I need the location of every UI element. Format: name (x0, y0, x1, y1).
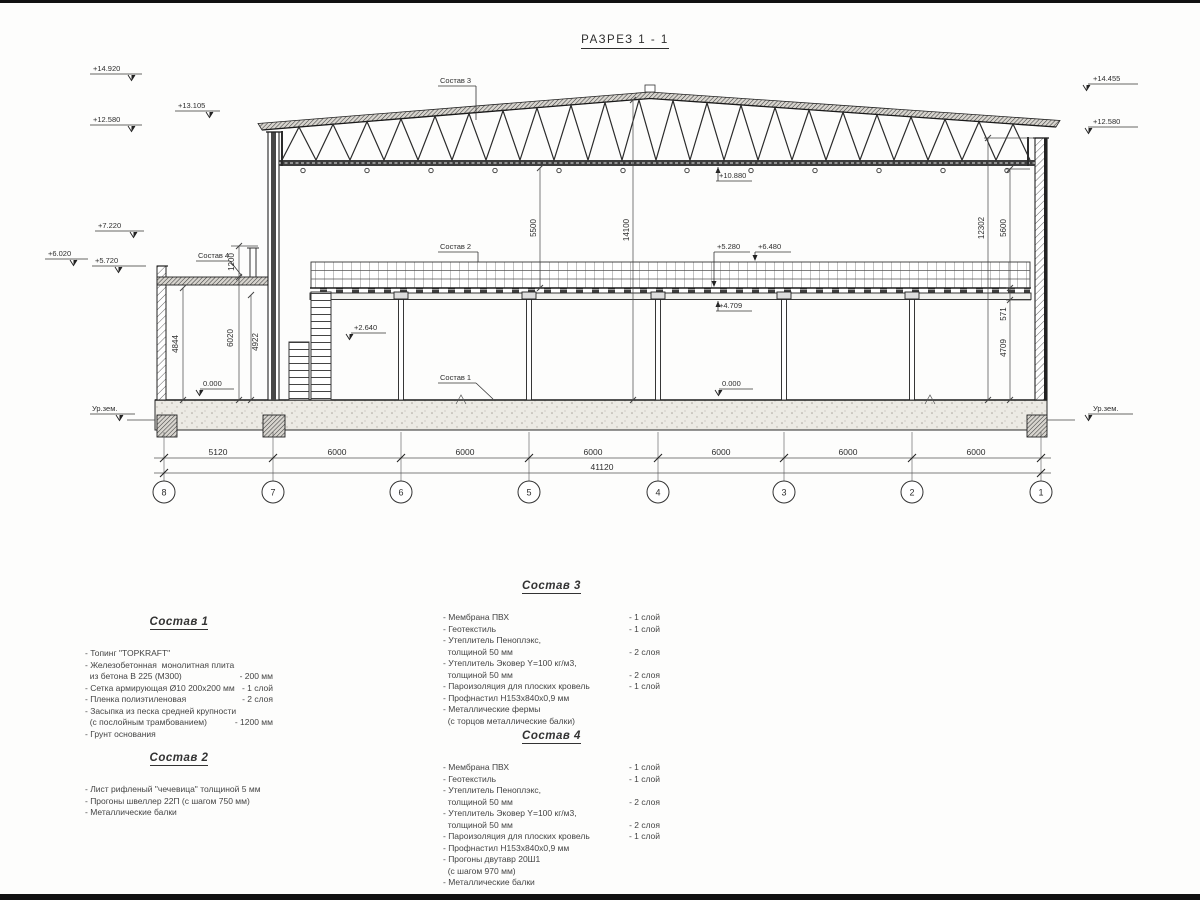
notes-sostav-3: Состав 3 - Мембрана ПВХ- 1 слой - Геотек… (443, 576, 660, 727)
note-line: - Профнастил Н153х840х0,9 мм (443, 843, 660, 855)
ground-level-label: Ур.зем. (92, 404, 117, 413)
note-line: (с послойным трамбованием)- 1200 мм (85, 717, 273, 729)
dimension-label: 5120 (209, 447, 228, 457)
note-line: - Сетка армирующая Ø10 200х200 мм- 1 сло… (85, 683, 273, 695)
callout-label: Состав 3 (440, 76, 471, 85)
dimension-label: 6000 (456, 447, 475, 457)
note-line: - Засыпка из песка средней крупности (85, 706, 273, 718)
note-line: - Утеплитель Пеноплэкс, (443, 635, 660, 647)
note-text: (с послойным трамбованием) (85, 717, 207, 729)
elevation-label: +14.455 (1093, 74, 1120, 83)
note-value: - 1 слой (629, 612, 660, 624)
note-text: - Прогоны швеллер 22П (с шагом 750 мм) (85, 796, 250, 808)
elevation-label: +5.280 (717, 242, 740, 251)
note-text: - Геотекстиль (443, 624, 496, 636)
interior-columns (394, 292, 919, 400)
note-heading: Состав 2 (85, 748, 273, 766)
note-text: - Утеплитель Эковер Y=100 кг/м3, (443, 658, 577, 670)
axis-number: 6 (398, 488, 403, 498)
note-value: - 1200 мм (235, 717, 273, 729)
note-line: толщиной 50 мм- 2 слоя (443, 820, 660, 832)
axis-number: 3 (781, 488, 786, 498)
stair (289, 292, 331, 400)
note-line: - Прогоны швеллер 22П (с шагом 750 мм) (85, 796, 273, 808)
annex (157, 248, 268, 400)
elevation-label: +4.709 (719, 301, 742, 310)
sheet-border-bottom (0, 894, 1200, 900)
dimension-label: 6000 (839, 447, 858, 457)
elevation-label: +13.105 (178, 101, 205, 110)
elevation-label: +14.920 (93, 64, 120, 73)
note-line: толщиной 50 мм- 2 слоя (443, 797, 660, 809)
dimension-label: 4844 (171, 335, 180, 353)
note-line: - Металлические балки (85, 807, 273, 819)
note-text: - Сетка армирующая Ø10 200х200 мм (85, 683, 235, 695)
notes-sostav-2: Состав 2 - Лист рифленый "чечевица" толщ… (85, 748, 273, 819)
note-text: - Пароизоляция для плоских кровель (443, 831, 590, 843)
note-heading: Состав 1 (85, 612, 273, 630)
dimension-label: 12302 (977, 216, 986, 239)
elevation-label: +2.640 (354, 323, 377, 332)
note-text: - Профнастил Н153х840х0,9 мм (443, 693, 569, 705)
elevation-marks-right: +14.455 +12.580 Ур.зем. (1083, 74, 1138, 421)
note-text: (с шагом 970 мм) (443, 866, 516, 878)
dimension-label: 6000 (712, 447, 731, 457)
dimension-label: 1200 (227, 253, 236, 271)
note-text: - Прогоны двутавр 20Ш1 (443, 854, 540, 866)
note-text: - Мембрана ПВХ (443, 762, 509, 774)
note-value: - 2 слоя (629, 670, 660, 682)
note-value: - 1 слой (629, 624, 660, 636)
dimension-label: 5600 (999, 219, 1008, 237)
note-line: - Геотекстиль- 1 слой (443, 624, 660, 636)
dimension-label: 4922 (251, 333, 260, 351)
axis-number: 2 (909, 488, 914, 498)
note-value: - 200 мм (240, 671, 273, 683)
note-text: - Утеплитель Пеноплэкс, (443, 635, 541, 647)
note-line: - Металлические фермы (443, 704, 660, 716)
note-value: - 1 слой (629, 762, 660, 774)
note-line: - Пароизоляция для плоских кровель- 1 сл… (443, 831, 660, 843)
elevation-marks-left: +14.920 +13.105 +12.580 +7.220 +6.020 +5… (45, 64, 220, 421)
chord-hooks (301, 168, 1009, 172)
axis-number: 4 (655, 488, 660, 498)
note-value: - 2 слоя (242, 694, 273, 706)
dimension-label: 4709 (999, 339, 1008, 357)
note-text: - Геотекстиль (443, 774, 496, 786)
elevation-label: +5.720 (95, 256, 118, 265)
note-value: - 2 слоя (629, 797, 660, 809)
truss-web (282, 100, 1030, 160)
callout-label: Состав 2 (440, 242, 471, 251)
dimension-label: 6000 (967, 447, 986, 457)
note-text: - Металлические балки (85, 807, 177, 819)
note-text: - Металлические балки (443, 877, 535, 889)
note-text: - Металлические фермы (443, 704, 540, 716)
elevation-label: +12.580 (93, 115, 120, 124)
note-line: - Топинг "TOPKRAFT" (85, 648, 273, 660)
note-line: - Железобетонная монолитная плита (85, 660, 273, 672)
note-text: - Профнастил Н153х840х0,9 мм (443, 843, 569, 855)
note-text: - Грунт основания (85, 729, 156, 741)
elevation-label: +7.220 (98, 221, 121, 230)
note-line: - Утеплитель Пеноплэкс, (443, 785, 660, 797)
note-line: - Пленка полиэтиленовая- 2 слоя (85, 694, 273, 706)
note-value: - 1 слой (629, 831, 660, 843)
axis-number: 7 (270, 488, 275, 498)
drawing-sheet: { "title": "РАЗРЕЗ 1 - 1", "drawing": { … (0, 0, 1200, 900)
note-text: - Мембрана ПВХ (443, 612, 509, 624)
note-line: - Утеплитель Эковер Y=100 кг/м3, (443, 808, 660, 820)
callout-label: Состав 1 (440, 373, 471, 382)
notes-sostav-1: Состав 1 - Топинг "TOPKRAFT" - Железобет… (85, 612, 273, 740)
dimension-label: 6000 (328, 447, 347, 457)
dimension-label: 5500 (529, 219, 538, 237)
axis-bubbles: 8 7 6 5 4 3 2 1 (153, 481, 1052, 503)
note-line: - Прогоны двутавр 20Ш1 (443, 854, 660, 866)
total-dimension-label: 41120 (590, 462, 613, 472)
note-value: - 1 слой (242, 683, 273, 695)
note-line: - Мембрана ПВХ- 1 слой (443, 612, 660, 624)
note-value: - 1 слой (629, 681, 660, 693)
dimension-label: 571 (999, 307, 1008, 321)
note-text: - Лист рифленый "чечевица" толщиной 5 мм (85, 784, 261, 796)
mezzanine (310, 262, 1031, 300)
note-value: - 1 слой (629, 774, 660, 786)
composition-callouts: Состав 3 Состав 2 Состав 1 Состав 4 (196, 76, 493, 399)
note-text: толщиной 50 мм (443, 820, 513, 832)
elevation-label: 0.000 (203, 379, 222, 388)
note-text: толщиной 50 мм (443, 670, 513, 682)
note-text: - Засыпка из песка средней крупности (85, 706, 236, 718)
note-line: толщиной 50 мм- 2 слоя (443, 670, 660, 682)
elevation-label: +6.020 (48, 249, 71, 258)
note-value: - 2 слоя (629, 647, 660, 659)
note-line: - Лист рифленый "чечевица" толщиной 5 мм (85, 784, 273, 796)
axis-number: 5 (526, 488, 531, 498)
dimension-label: 14100 (622, 218, 631, 241)
axis-number: 8 (161, 488, 166, 498)
note-line: из бетона В 225 (М300)- 200 мм (85, 671, 273, 683)
note-line: - Мембрана ПВХ- 1 слой (443, 762, 660, 774)
note-text: - Утеплитель Пеноплэкс, (443, 785, 541, 797)
note-text: толщиной 50 мм (443, 797, 513, 809)
note-line: - Металлические балки (443, 877, 660, 889)
note-text: - Топинг "TOPKRAFT" (85, 648, 170, 660)
ground-level-label: Ур.зем. (1093, 404, 1118, 413)
note-line: - Утеплитель Эковер Y=100 кг/м3, (443, 658, 660, 670)
note-heading: Состав 4 (443, 726, 660, 744)
bottom-dimension-labels: 5120 6000 6000 6000 6000 6000 6000 41120 (209, 447, 986, 472)
section-drawing: +14.920 +13.105 +12.580 +7.220 +6.020 +5… (0, 0, 1200, 520)
dimension-chain-bottom (154, 432, 1051, 481)
note-text: - Пароизоляция для плоских кровель (443, 681, 590, 693)
note-line: - Профнастил Н153х840х0,9 мм (443, 693, 660, 705)
note-text: - Железобетонная монолитная плита (85, 660, 234, 672)
dimension-label: 6020 (226, 329, 235, 347)
note-text: - Пленка полиэтиленовая (85, 694, 186, 706)
note-heading: Состав 3 (443, 576, 660, 594)
note-value: - 2 слоя (629, 820, 660, 832)
note-text: толщиной 50 мм (443, 647, 513, 659)
note-line: - Грунт основания (85, 729, 273, 741)
callout-label: Состав 4 (198, 251, 229, 260)
note-text: - Утеплитель Эковер Y=100 кг/м3, (443, 808, 577, 820)
elevation-label: +12.580 (1093, 117, 1120, 126)
elevation-label: +6.480 (758, 242, 781, 251)
elevation-label: 0.000 (722, 379, 741, 388)
roof-truss (258, 85, 1060, 173)
note-line: - Пароизоляция для плоских кровель- 1 сл… (443, 681, 660, 693)
note-line: (с шагом 970 мм) (443, 866, 660, 878)
axis-number: 1 (1038, 488, 1043, 498)
notes-sostav-4: Состав 4 - Мембрана ПВХ- 1 слой - Геотек… (443, 726, 660, 889)
dimension-label: 6000 (584, 447, 603, 457)
note-text: из бетона В 225 (М300) (85, 671, 182, 683)
elevation-label: +10.880 (719, 171, 746, 180)
note-line: толщиной 50 мм- 2 слоя (443, 647, 660, 659)
note-line: - Геотекстиль- 1 слой (443, 774, 660, 786)
